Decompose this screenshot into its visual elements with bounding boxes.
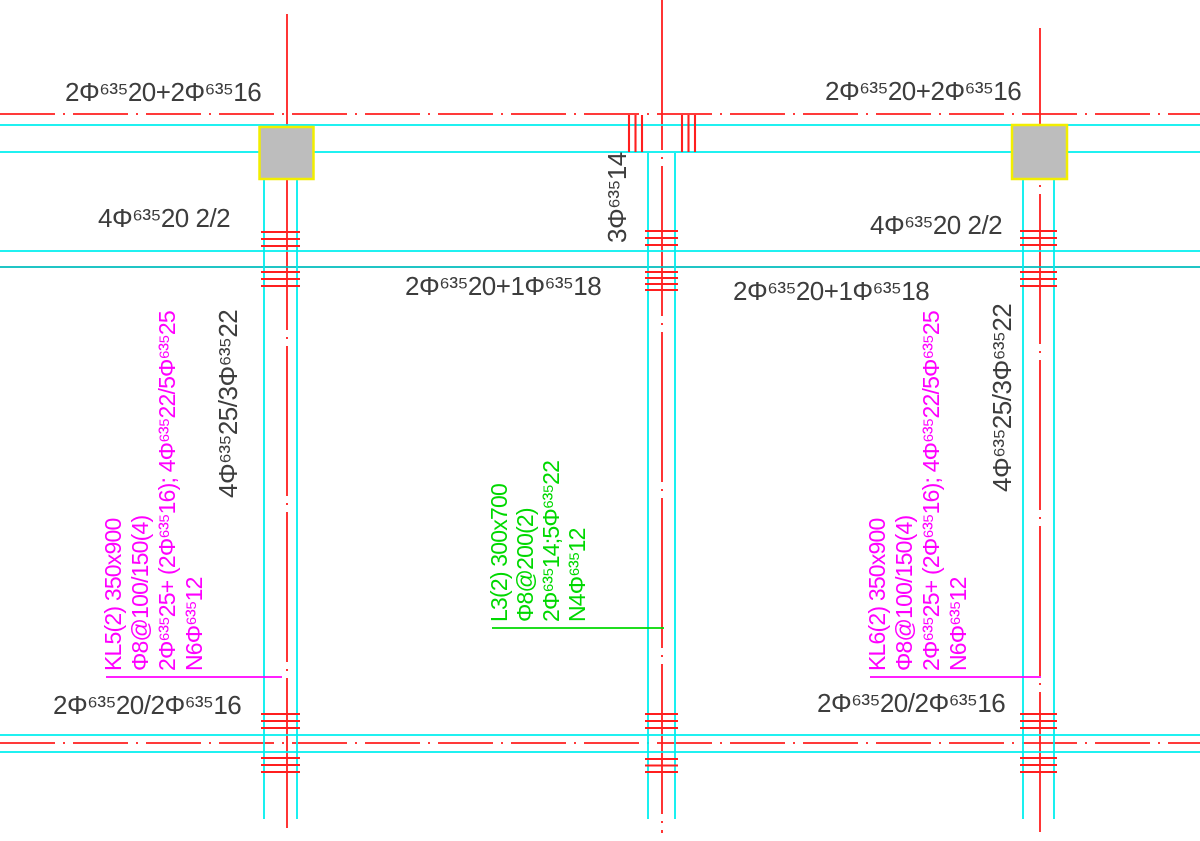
l3-line-1: L3(2) 300x700 xyxy=(486,484,512,622)
kl6-line-1: KL6(2) 350x900 xyxy=(864,519,890,671)
label-top-right: 2Φ⁶³⁵20+2Φ⁶³⁵16 xyxy=(825,77,1021,105)
label-hanger-center: 3Φ⁶³⁵14 xyxy=(603,152,631,243)
l3-line-2: Φ8@200(2) xyxy=(512,508,538,622)
label-mid-right: 2Φ⁶³⁵20+1Φ⁶³⁵18 xyxy=(733,277,929,305)
kl6-line-2: Φ8@100/150(4) xyxy=(891,516,917,671)
l3-line-4: N4Φ⁶³⁵12 xyxy=(564,528,590,622)
label-bottom-left: 2Φ⁶³⁵20/2Φ⁶³⁵16 xyxy=(53,691,241,719)
column-right xyxy=(1012,125,1067,179)
kl5-line-4: N6Φ⁶³⁵12 xyxy=(181,577,207,671)
label-support-left: 4Φ⁶³⁵20 2/2 xyxy=(98,204,230,232)
label-mid-left: 2Φ⁶³⁵20+1Φ⁶³⁵18 xyxy=(405,272,601,300)
column-left xyxy=(260,127,314,179)
label-side-right: 4Φ⁶³⁵25/3Φ⁶³⁵22 xyxy=(988,304,1016,492)
label-top-left: 2Φ⁶³⁵20+2Φ⁶³⁵16 xyxy=(65,78,261,106)
label-bottom-right: 2Φ⁶³⁵20/2Φ⁶³⁵16 xyxy=(817,689,1005,717)
label-side-left: 4Φ⁶³⁵25/3Φ⁶³⁵22 xyxy=(214,310,242,498)
kl5-line-3: 2Φ⁶³⁵25+ (2Φ⁶³⁵16); 4Φ⁶³⁵22/5Φ⁶³⁵25 xyxy=(154,311,180,671)
kl5-line-2: Φ8@100/150(4) xyxy=(127,516,153,671)
beam-reinforcement-plan: 2Φ⁶³⁵20+2Φ⁶³⁵16 2Φ⁶³⁵20+2Φ⁶³⁵16 4Φ⁶³⁵20 … xyxy=(0,0,1200,841)
l3-line-3: 2Φ⁶³⁵14;5Φ⁶³⁵22 xyxy=(538,461,564,622)
kl6-line-4: N6Φ⁶³⁵12 xyxy=(945,577,971,671)
label-support-right: 4Φ⁶³⁵20 2/2 xyxy=(870,211,1002,239)
kl6-line-3: 2Φ⁶³⁵25+ (2Φ⁶³⁵16); 4Φ⁶³⁵22/5Φ⁶³⁵25 xyxy=(918,311,944,671)
kl5-line-1: KL5(2) 350x900 xyxy=(100,519,126,671)
